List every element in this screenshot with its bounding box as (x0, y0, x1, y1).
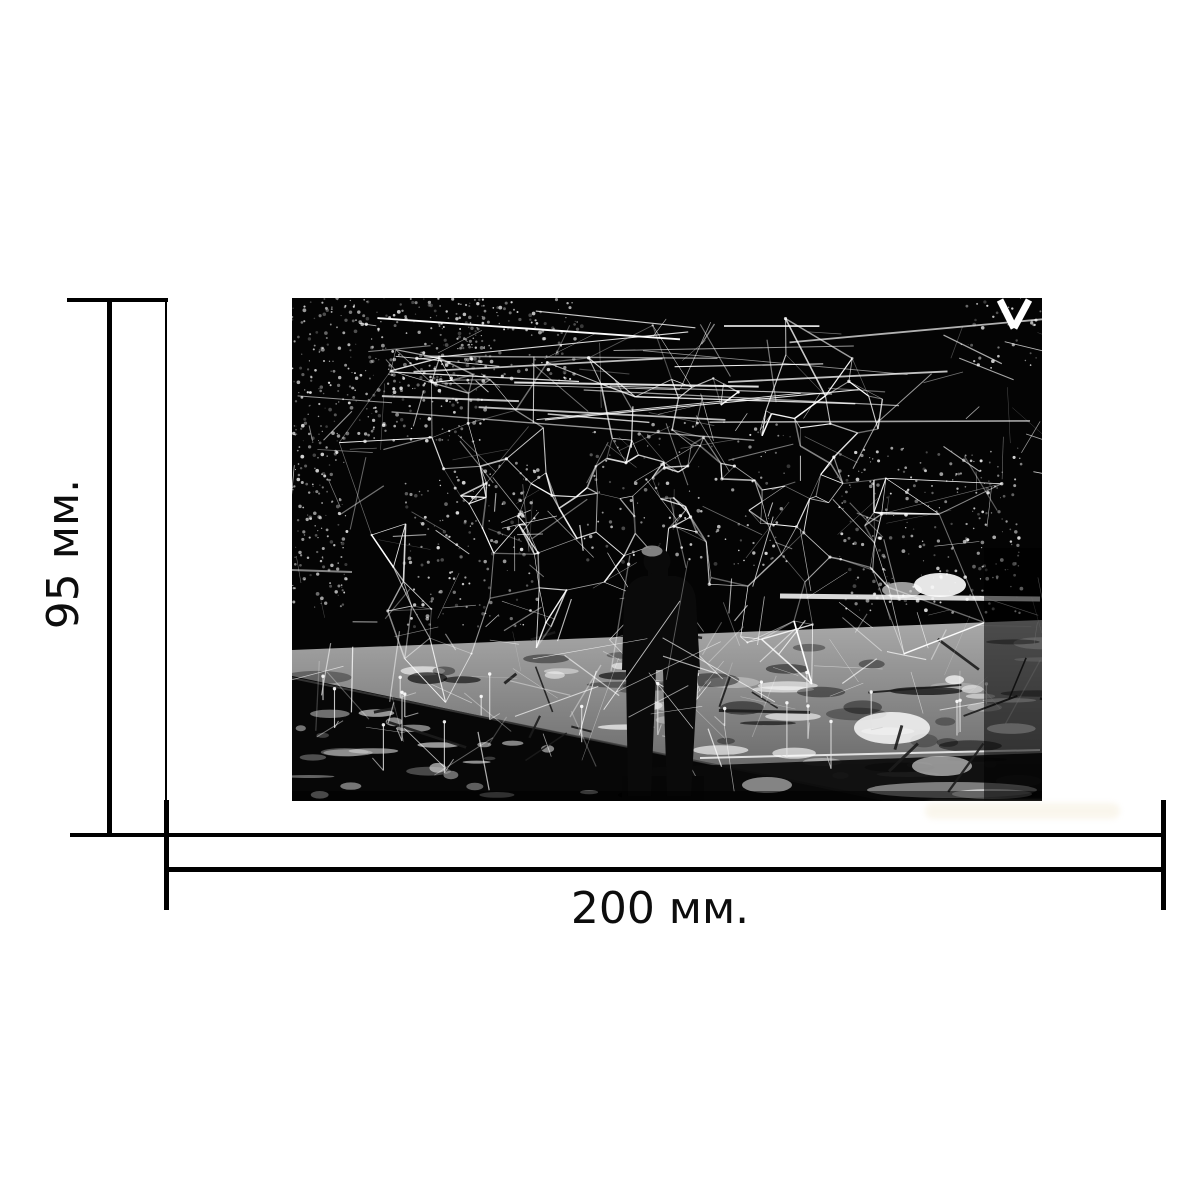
width-dimension-right-tick (1161, 800, 1166, 910)
height-dimension-top-cap (67, 298, 168, 302)
photo-edge-extension-line (165, 300, 167, 802)
height-dimension-label: 95 мм. (39, 444, 89, 664)
height-dimension-line (107, 298, 112, 837)
width-dimension-left-tick (164, 800, 169, 910)
width-dimension-line (166, 867, 1166, 872)
width-dimension-label: 200 мм. (500, 884, 820, 934)
product-photo (292, 298, 1042, 801)
product-photo-svg (292, 298, 1042, 801)
photo-artifact-smudge (925, 803, 1120, 819)
height-dimension-bottom-cap (70, 833, 1166, 837)
product-dimensions-figure: 95 мм. 200 мм. (0, 0, 1200, 1200)
